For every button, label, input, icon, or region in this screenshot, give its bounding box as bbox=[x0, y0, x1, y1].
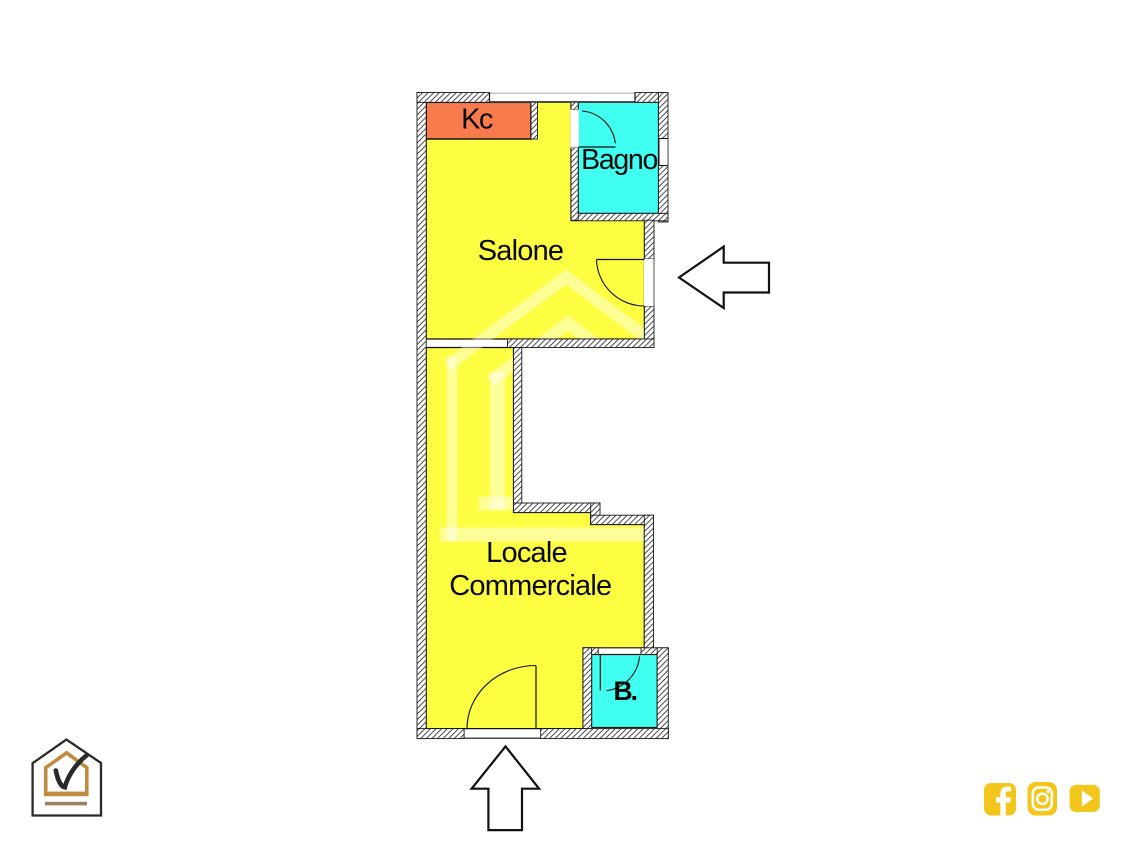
svg-text:B.: B. bbox=[613, 676, 636, 706]
svg-text:Bagno: Bagno bbox=[581, 144, 657, 176]
svg-text:Locale: Locale bbox=[486, 537, 567, 569]
svg-text:Kc: Kc bbox=[461, 104, 493, 136]
svg-text:Commerciale: Commerciale bbox=[449, 570, 611, 602]
svg-text:Salone: Salone bbox=[478, 235, 564, 267]
